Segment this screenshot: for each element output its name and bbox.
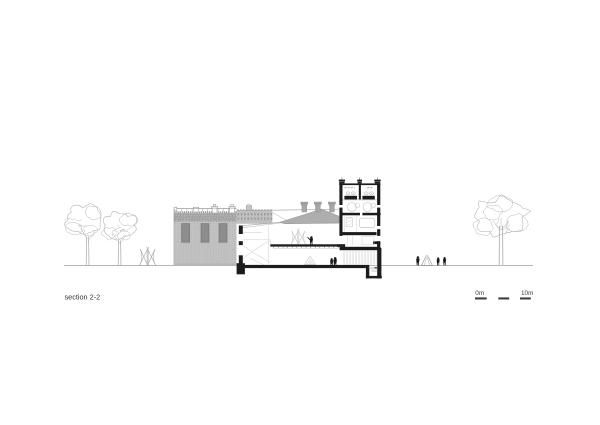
svg-text:10m: 10m	[521, 290, 533, 297]
svg-text:section 2-2: section 2-2	[65, 293, 101, 302]
svg-text:0m: 0m	[475, 290, 484, 297]
